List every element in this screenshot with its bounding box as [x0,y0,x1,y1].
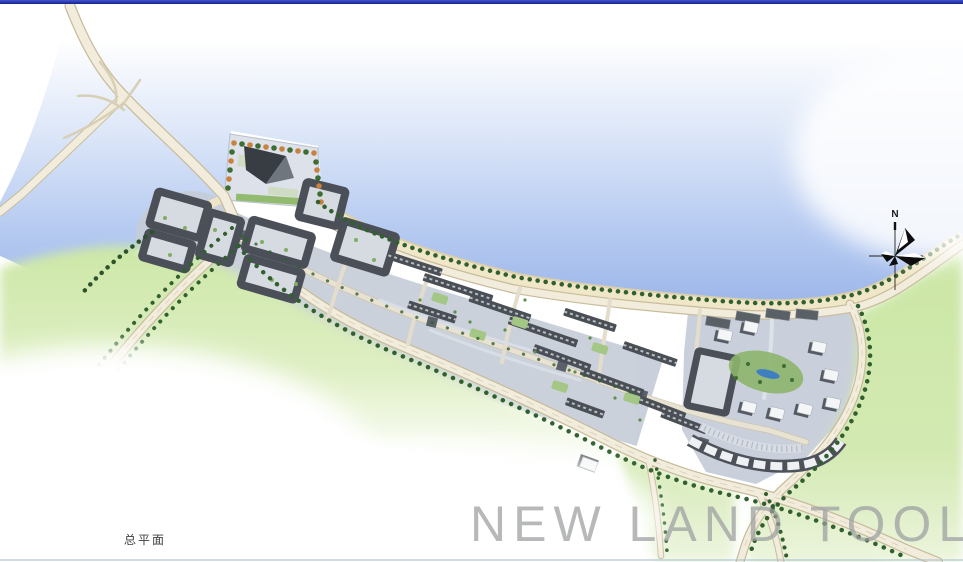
compass-north-label: N [891,209,898,220]
watermark-text: NEW LAND TOOL [470,495,940,553]
site-plan-map: N [0,0,963,562]
master-plan-page: N NEW LAND TOOL 总平面 [0,0,963,562]
plan-title-label: 总平面 [124,531,166,548]
top-border-line [0,0,963,4]
bottom-border-line [0,559,963,561]
